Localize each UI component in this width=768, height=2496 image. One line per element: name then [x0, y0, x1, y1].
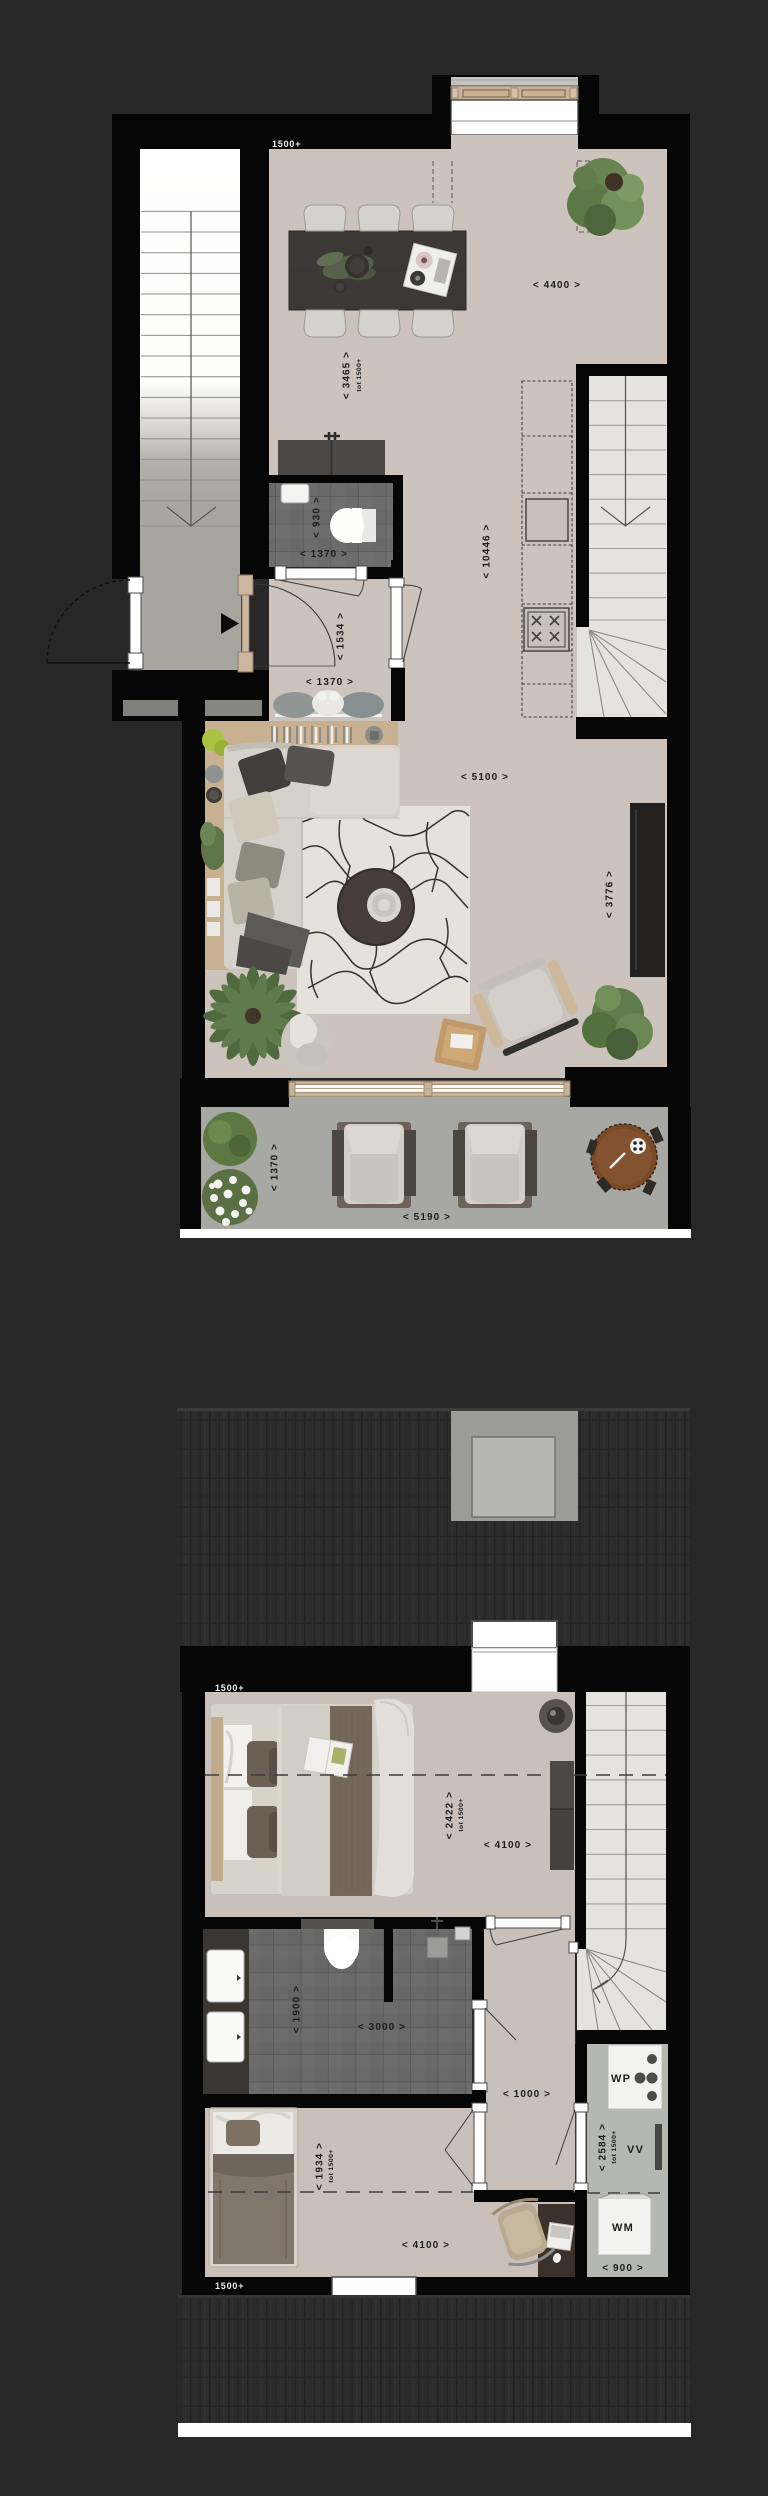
svg-text:tot 1500+: tot 1500+: [356, 358, 363, 391]
svg-text:< 1900 >: < 1900 >: [292, 1985, 303, 2033]
svg-text:1500+: 1500+: [272, 139, 301, 149]
svg-text:< 4400 >: < 4400 >: [533, 280, 581, 291]
svg-text:< 3776 >: < 3776 >: [605, 870, 616, 918]
svg-text:WM: WM: [612, 2222, 634, 2234]
svg-text:< 900 >: < 900 >: [602, 2263, 644, 2274]
svg-text:tot 1500+: tot 1500+: [611, 2130, 618, 2163]
svg-text:< 10446 >: < 10446 >: [482, 524, 493, 579]
svg-text:< 4100 >: < 4100 >: [484, 1840, 532, 1851]
svg-text:< 1370 >: < 1370 >: [300, 549, 348, 560]
svg-text:< 3465 >: < 3465 >: [342, 351, 353, 399]
svg-text:VV: VV: [627, 2144, 644, 2156]
svg-text:< 1000 >: < 1000 >: [503, 2089, 551, 2100]
svg-text:< 2422 >: < 2422 >: [445, 1791, 456, 1839]
svg-text:< 1934 >: < 1934 >: [315, 2142, 326, 2190]
svg-text:< 1534 >: < 1534 >: [336, 612, 347, 660]
svg-text:< 5190 >: < 5190 >: [403, 1212, 451, 1223]
svg-text:1500+: 1500+: [215, 1683, 244, 1693]
svg-text:< 2584 >: < 2584 >: [598, 2123, 609, 2171]
svg-text:tot 1500+: tot 1500+: [328, 2149, 335, 2182]
svg-text:< 4100 >: < 4100 >: [402, 2240, 450, 2251]
svg-text:< 5100 >: < 5100 >: [461, 772, 509, 783]
svg-text:< 1370 >: < 1370 >: [270, 1143, 281, 1191]
svg-text:< 3000 >: < 3000 >: [358, 2022, 406, 2033]
svg-text:1500+: 1500+: [215, 2281, 244, 2291]
svg-text:WP: WP: [611, 2073, 631, 2085]
svg-text:tot 1500+: tot 1500+: [458, 1798, 465, 1831]
svg-text:< 930 >: < 930 >: [312, 496, 323, 538]
svg-text:< 1370 >: < 1370 >: [306, 677, 354, 688]
